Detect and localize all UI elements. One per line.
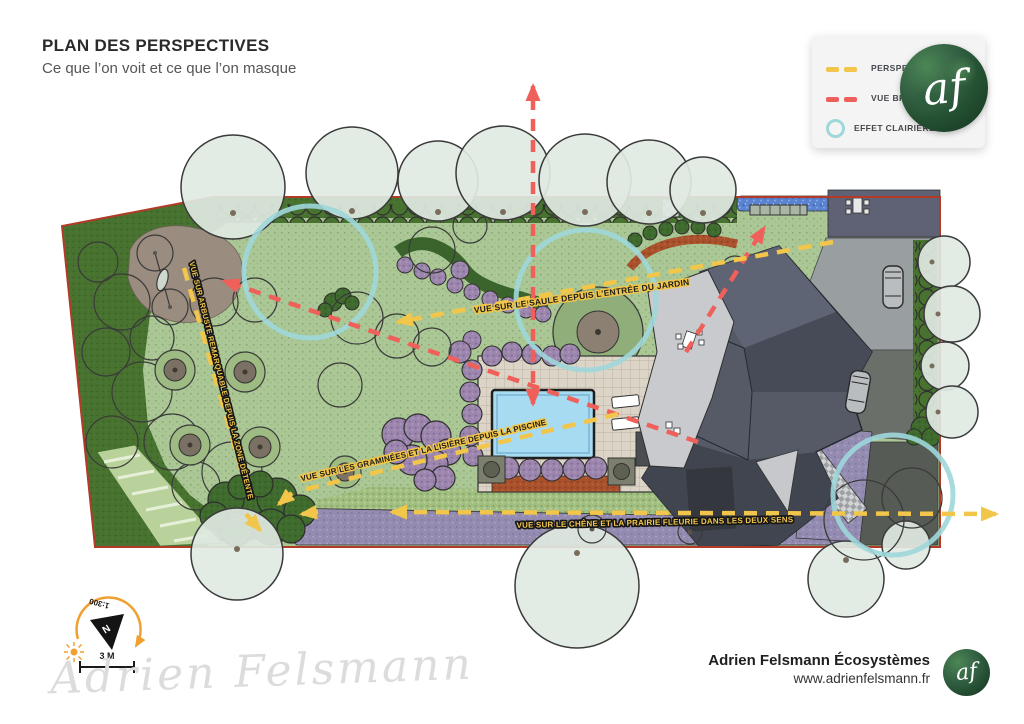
footer: Adrien Felsmann Écosystèmes www.adrienfe… <box>708 652 930 686</box>
brand-monogram: af <box>920 60 968 115</box>
footer-company: Adrien Felsmann Écosystèmes <box>708 652 930 669</box>
brand-logo: af <box>900 44 988 132</box>
car <box>883 266 903 308</box>
clairiere-circle-icon <box>826 119 845 138</box>
vue-brisee-dash-icon <box>826 89 862 107</box>
bench <box>750 205 807 215</box>
page-title: PLAN DES PERSPECTIVES <box>42 36 296 56</box>
page-subtitle: Ce que l’on voit et ce que l’on masque <box>42 60 296 77</box>
footer-logo: af <box>943 649 990 696</box>
perspective-dash-icon <box>826 59 862 77</box>
footer-monogram: af <box>955 659 979 686</box>
footer-website: www.adrienfelsmann.fr <box>708 671 930 686</box>
plan-canvas: PLAN DES PERSPECTIVES Ce que l’on voit e… <box>0 0 1024 724</box>
header: PLAN DES PERSPECTIVES Ce que l’on voit e… <box>42 36 296 77</box>
